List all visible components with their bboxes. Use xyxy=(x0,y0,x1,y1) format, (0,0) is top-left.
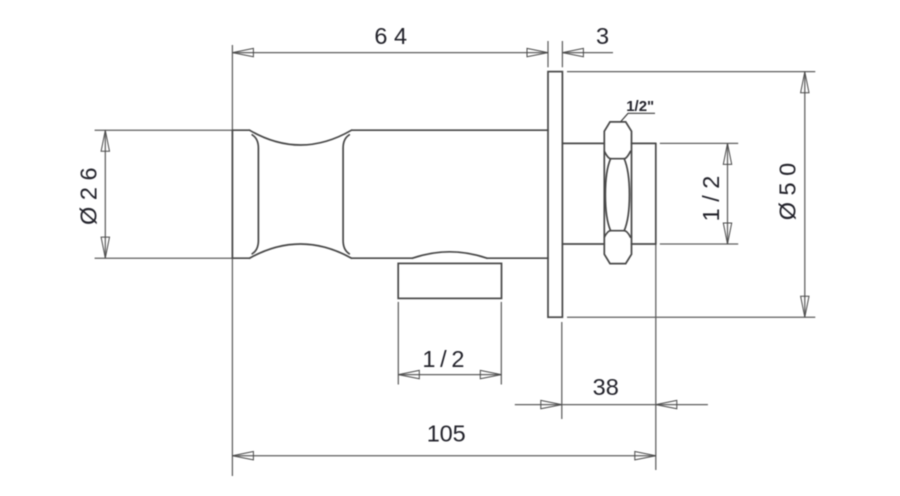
svg-text:38: 38 xyxy=(593,374,619,400)
svg-text:1/2": 1/2" xyxy=(626,98,654,115)
svg-text:3: 3 xyxy=(596,23,609,49)
svg-text:6 4: 6 4 xyxy=(374,23,407,49)
svg-text:1 / 2: 1 / 2 xyxy=(422,346,464,372)
svg-text:Ø 2 6: Ø 2 6 xyxy=(76,167,102,224)
svg-text:1 / 2: 1 / 2 xyxy=(698,176,724,222)
svg-text:105: 105 xyxy=(427,420,466,446)
svg-text:Ø 5 0: Ø 5 0 xyxy=(775,163,801,220)
